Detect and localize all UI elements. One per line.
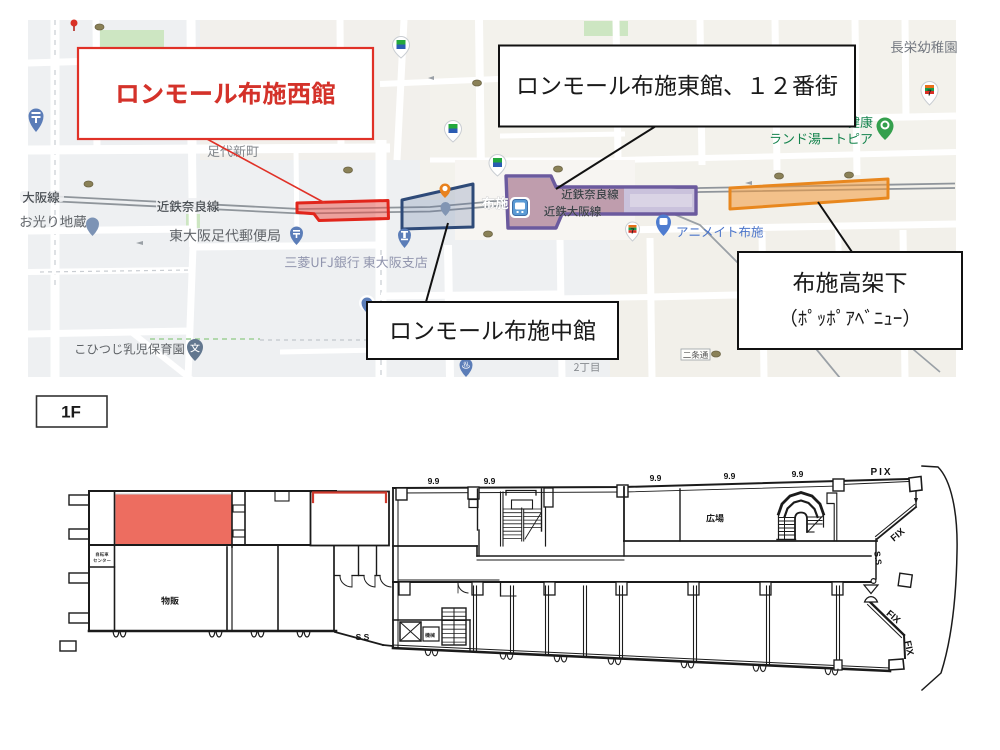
svg-text:S.S: S.S: [872, 551, 884, 566]
svg-text:1F: 1F: [61, 403, 81, 422]
svg-text:9.9: 9.9: [484, 476, 496, 486]
svg-text:9.9: 9.9: [724, 471, 736, 481]
svg-text:PIX: PIX: [870, 467, 892, 478]
svg-text:S.S: S.S: [356, 632, 370, 642]
svg-text:9.9: 9.9: [792, 469, 804, 479]
svg-text:9.9: 9.9: [650, 473, 662, 483]
svg-text:9.9: 9.9: [428, 476, 440, 486]
